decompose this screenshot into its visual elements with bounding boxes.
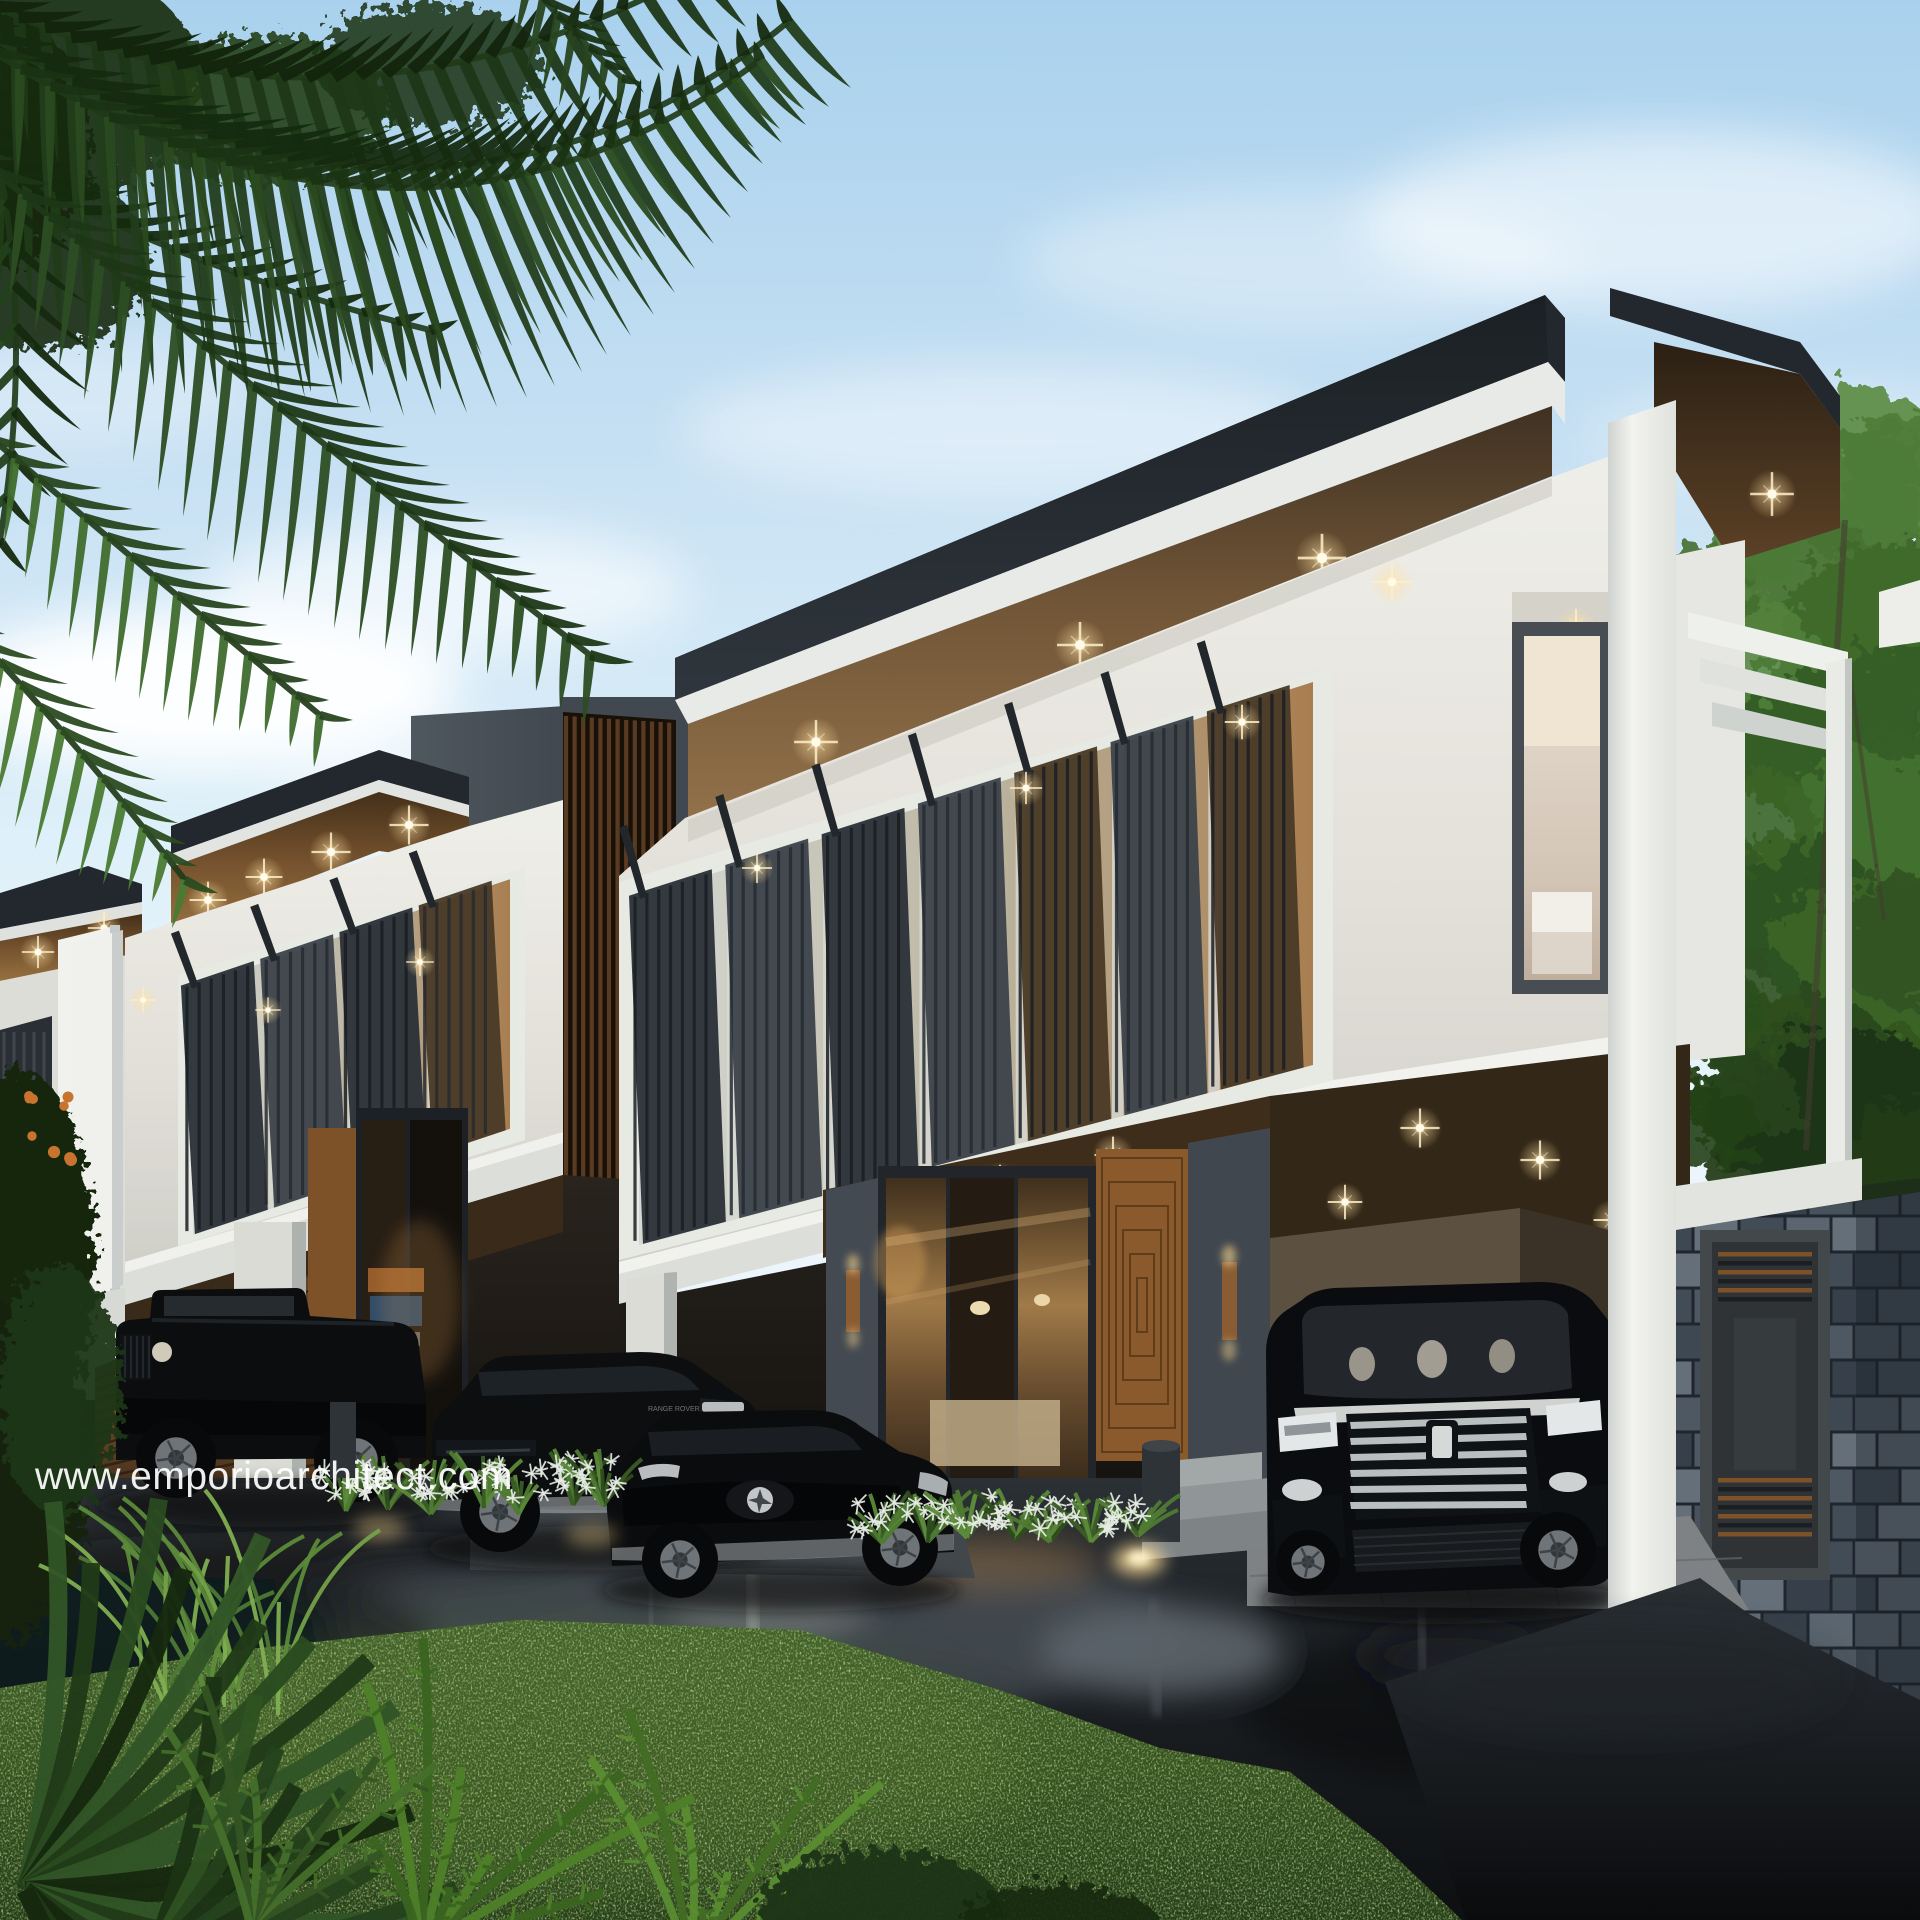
svg-text:www.emporioarchitect.com: www.emporioarchitect.com (34, 1455, 513, 1498)
